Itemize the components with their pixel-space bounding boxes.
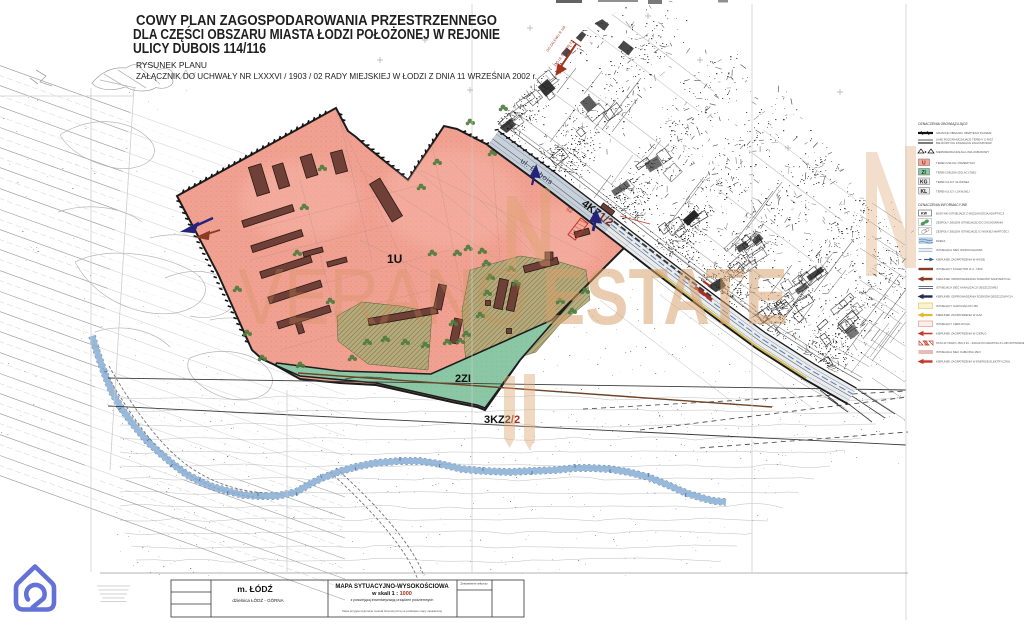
svg-text:TEREN ZIELENI IZOLACYJNEJ: TEREN ZIELENI IZOLACYJNEJ bbox=[936, 171, 977, 175]
svg-text:KG: KG bbox=[920, 179, 928, 185]
svg-text:OZNACZENIA OBOWIĄZUJĄCE: OZNACZENIA OBOWIĄZUJĄCE bbox=[918, 122, 968, 126]
svg-text:KIERUNEK ZAOPATRZENIA W ENERGI: KIERUNEK ZAOPATRZENIA W ENERGIĘ ELEKTRYC… bbox=[936, 360, 1010, 364]
svg-text:ULICY DUBOIS 114/116: ULICY DUBOIS 114/116 bbox=[133, 41, 266, 57]
svg-text:U: U bbox=[922, 160, 926, 166]
svg-text:NIEPRZEKRACZALNA LINIA ZABUDOW: NIEPRZEKRACZALNA LINIA ZABUDOWY bbox=[936, 150, 989, 154]
svg-text:VERANO: VERANO bbox=[238, 252, 528, 341]
svg-text:KIERUNEK ZAOPATRZENIA W CIEPŁO: KIERUNEK ZAOPATRZENIA W CIEPŁO bbox=[936, 332, 987, 336]
svg-text:ZESPOŁY ZIELENI ISTNIEJĄCEJ DO: ZESPOŁY ZIELENI ISTNIEJĄCEJ DO ZACHOWANI… bbox=[936, 221, 1003, 225]
svg-text:ZAŁĄCZNIK DO UCHWAŁY NR LXXXVI: ZAŁĄCZNIK DO UCHWAŁY NR LXXXVI / 1903 / … bbox=[136, 70, 537, 81]
svg-text:RYSUNEK PLANU: RYSUNEK PLANU bbox=[136, 60, 207, 70]
svg-text:STACJA TRAFO 15/0,4 kV - ZAKAZ: STACJA TRAFO 15/0,4 kV - ZAKAZ DO ADAPTA… bbox=[936, 341, 1024, 345]
svg-text:KW: KW bbox=[921, 212, 928, 216]
svg-text:TEREN ULICY GŁÓWNEJ: TEREN ULICY GŁÓWNEJ bbox=[936, 179, 970, 184]
svg-text:ZESPOŁY ZIELENI ISTNIEJĄCEJ O: ZESPOŁY ZIELENI ISTNIEJĄCEJ O NISKIEJ WA… bbox=[936, 229, 1009, 234]
svg-text:BUDYNKI ISTNIEJĄCE Z MOŻLIWOŚC: BUDYNKI ISTNIEJĄCE Z MOŻLIWOŚCIĄ ADAPTAC… bbox=[936, 211, 1005, 216]
svg-text:ESTATE: ESTATE bbox=[542, 252, 788, 341]
svg-text:OZNACZENIA INFORMACYJNE: OZNACZENIA INFORMACYJNE bbox=[918, 203, 968, 207]
svg-text:ISTNIEJĄCY CIEPŁOCIĄG: ISTNIEJĄCY CIEPŁOCIĄG bbox=[936, 322, 970, 326]
svg-text:ISTNIEJĄCA SIEĆ KANALIZACJI DE: ISTNIEJĄCA SIEĆ KANALIZACJI DESZCZOWEJ bbox=[936, 285, 998, 290]
svg-text:ZI: ZI bbox=[922, 170, 927, 176]
svg-text:KL: KL bbox=[921, 189, 928, 195]
svg-text:2ZI: 2ZI bbox=[455, 373, 471, 385]
svg-text:KIERUNEK ODPROWADZANIA ŚCIEKÓW: KIERUNEK ODPROWADZANIA ŚCIEKÓW DESZCZOWY… bbox=[936, 294, 1013, 299]
svg-text:GRANICE OBSZARU OBJĘTEGO PLANE: GRANICE OBSZARU OBJĘTEGO PLANEM bbox=[936, 131, 992, 135]
svg-text:KIERUNEK ZAOPATRZENIA W GAZ: KIERUNEK ZAOPATRZENIA W GAZ bbox=[936, 313, 982, 317]
svg-text:BIE RÓŻNYCH ZASADACH ZAGOSPODA: BIE RÓŻNYCH ZASADACH ZAGOSPODAR bbox=[936, 140, 992, 145]
svg-text:ISTNIEJĄCA SIEĆ KABLOWA 15kV: ISTNIEJĄCA SIEĆ KABLOWA 15kV bbox=[936, 349, 981, 354]
svg-text:ISTNIEJĄCY KOLEKTOR IA d - 150: ISTNIEJĄCY KOLEKTOR IA d - 1500 bbox=[936, 267, 983, 271]
svg-text:RZEKA: RZEKA bbox=[936, 239, 945, 243]
svg-text:ISTNIEJĄCY GAZOCIĄG DN 150: ISTNIEJĄCY GAZOCIĄG DN 150 bbox=[936, 304, 978, 308]
svg-text:KIERUNEK ZAOPATRZENIA W WODĘ: KIERUNEK ZAOPATRZENIA W WODĘ bbox=[936, 258, 985, 262]
svg-text:TEREN ULICY LOKALNEJ: TEREN ULICY LOKALNEJ bbox=[936, 190, 970, 194]
svg-text:TEREN USŁUG I PRZEMYSŁU: TEREN USŁUG I PRZEMYSŁU bbox=[936, 161, 975, 165]
svg-text:ISTNIEJĄCA SIEĆ WODOCIĄGOWA: ISTNIEJĄCA SIEĆ WODOCIĄGOWA bbox=[936, 247, 983, 252]
svg-text:KIERUNEK ODPROWADZANIA ŚCIEKÓW: KIERUNEK ODPROWADZANIA ŚCIEKÓW SANITARNY… bbox=[936, 276, 1010, 281]
